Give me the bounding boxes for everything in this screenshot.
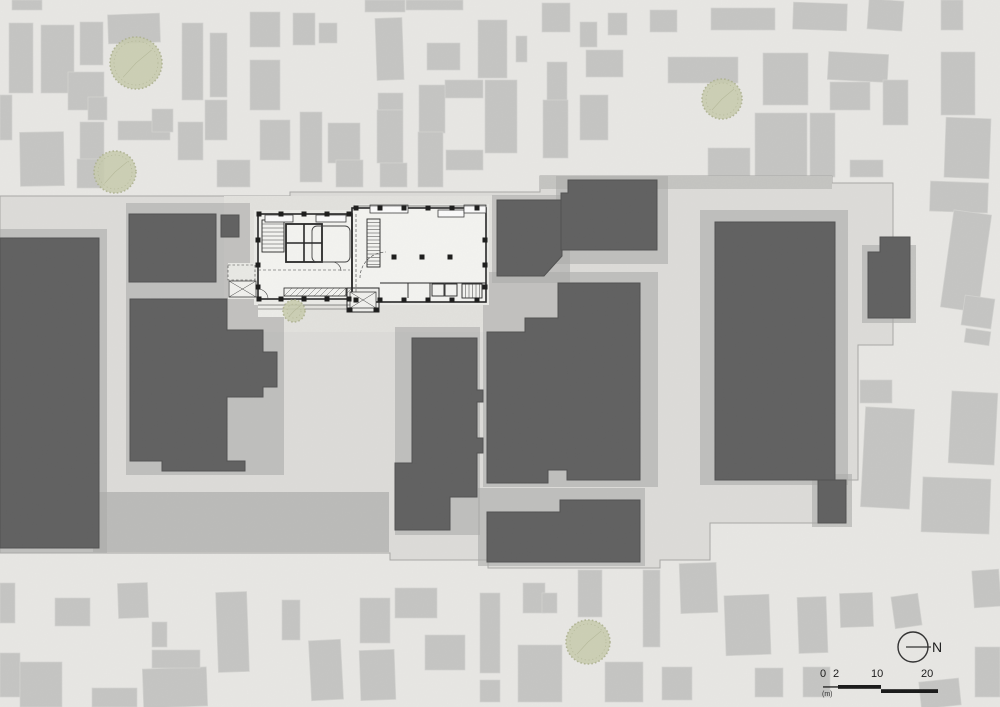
paper-grain-texture [0,0,1000,707]
scale-label-10: 10 [871,669,883,680]
scale-label-20: 20 [921,669,933,680]
site-plan-canvas: N 0 2 10 20 (m) [0,0,1000,707]
scale-label-2: 2 [833,669,839,680]
scale-label-0: 0 [820,669,826,680]
north-label: N [932,640,943,654]
scale-unit-label: (m) [822,691,833,698]
site-plan-drawing [0,0,1000,707]
